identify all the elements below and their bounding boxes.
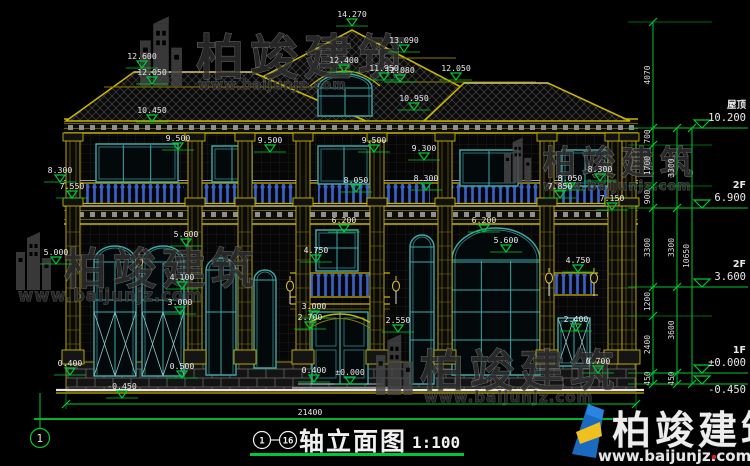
elevation-marker-value: -0.450 xyxy=(107,381,137,391)
elevation-marker-value: 4.750 xyxy=(304,245,329,255)
lantern-body xyxy=(546,273,553,283)
dentil xyxy=(277,212,282,217)
dentil xyxy=(90,125,95,130)
title-underline xyxy=(250,453,464,456)
pilaster-band xyxy=(63,198,83,206)
elevation-marker-value: 2.400 xyxy=(564,314,589,324)
dentil xyxy=(310,212,315,217)
pilaster-capital xyxy=(537,133,557,141)
dentil xyxy=(244,125,249,130)
dentil xyxy=(453,212,458,217)
dentil xyxy=(321,125,326,130)
pilaster-capital xyxy=(235,133,255,141)
elevation-marker-value: 3.000 xyxy=(168,297,193,307)
dentil xyxy=(343,125,348,130)
dentil xyxy=(497,125,502,130)
elevation-marker-value: 0.700 xyxy=(586,356,611,366)
chain-dim-value: 900 xyxy=(643,190,652,205)
pilaster-base xyxy=(292,350,314,364)
balustrade xyxy=(204,184,308,203)
dentil xyxy=(156,125,161,130)
chain-dim-value: 1700 xyxy=(643,156,652,175)
pilaster-capital xyxy=(293,133,313,141)
url-red-dot xyxy=(712,455,717,460)
elevation-marker-value: 10.450 xyxy=(137,105,167,115)
dentil xyxy=(585,212,590,217)
dentil xyxy=(211,212,216,217)
dentil xyxy=(123,212,128,217)
dentil xyxy=(563,212,568,217)
dentil xyxy=(409,125,414,130)
dentil xyxy=(519,212,524,217)
dentil xyxy=(508,212,513,217)
level-value: 6.900 xyxy=(714,192,746,204)
dentil xyxy=(519,125,524,130)
elevation-marker-value: 9.500 xyxy=(166,133,191,143)
dentil xyxy=(101,212,106,217)
dentil xyxy=(222,212,227,217)
watermark-logo-bottom-right: 柏竣建筑 www.baijunjz.com xyxy=(572,404,750,465)
elevation-marker-value: 9.500 xyxy=(258,135,283,145)
elevation-marker-value: 8.050 xyxy=(344,175,369,185)
dentil xyxy=(112,125,117,130)
dentil xyxy=(365,125,370,130)
pilaster-band xyxy=(537,198,557,206)
dentil xyxy=(420,125,425,130)
chain-dim-value: 3300 xyxy=(643,238,652,257)
elevation-marker-value: ±0.000 xyxy=(335,367,365,377)
dentil xyxy=(508,125,513,130)
level-value: ±0.000 xyxy=(708,357,746,369)
dentil xyxy=(321,212,326,217)
chain-dim-value: 3300 xyxy=(667,158,676,177)
dentil xyxy=(255,125,260,130)
elevation-marker-value: 9.500 xyxy=(362,135,387,145)
drawing-title: 轴立面图 xyxy=(299,427,407,456)
dentil xyxy=(431,125,436,130)
dentil xyxy=(552,125,557,130)
dentil xyxy=(618,125,623,130)
chain-dim-value: 4070 xyxy=(643,65,652,84)
dentil xyxy=(563,125,568,130)
dentil xyxy=(167,125,172,130)
elevation-marker-value: 5.000 xyxy=(44,247,69,257)
dentil xyxy=(464,125,469,130)
dentil xyxy=(409,212,414,217)
dentil xyxy=(354,125,359,130)
watermark-url: www.baijunjz.com xyxy=(424,388,593,406)
level-label: 2F xyxy=(733,180,746,191)
dentil xyxy=(530,125,535,130)
dentil xyxy=(365,212,370,217)
elevation-marker-value: 7.150 xyxy=(600,193,625,203)
dentil xyxy=(178,125,183,130)
rect xyxy=(370,133,384,362)
elevation-marker-value: 7.550 xyxy=(60,181,85,191)
elevation-marker-value: 9.300 xyxy=(412,143,437,153)
elevation-marker-value: 11.950 xyxy=(369,63,399,73)
chain-dim-value: 3300 xyxy=(667,238,676,257)
pilaster-band xyxy=(185,198,205,206)
lantern-body xyxy=(287,281,294,291)
pilaster-base xyxy=(618,350,640,364)
dentil xyxy=(178,212,183,217)
elevation-marker-value: 2.550 xyxy=(386,315,411,325)
dentil xyxy=(442,125,447,130)
dentil xyxy=(497,212,502,217)
dentil xyxy=(541,125,546,130)
lantern-body xyxy=(591,273,598,283)
dentil xyxy=(596,212,601,217)
elevation-marker-value: 8.300 xyxy=(588,164,613,174)
dentil xyxy=(464,212,469,217)
level-label: 2F xyxy=(733,259,746,270)
elevation-marker-value: 12.400 xyxy=(329,55,359,65)
rect xyxy=(438,133,452,362)
balustrade xyxy=(440,184,552,203)
porch-balustrade xyxy=(552,274,592,294)
dentil xyxy=(398,212,403,217)
dentil xyxy=(222,125,227,130)
chain-dim-value: 3600 xyxy=(667,320,676,339)
dentil xyxy=(90,212,95,217)
pilaster-capital xyxy=(63,133,83,141)
dentil xyxy=(431,212,436,217)
pilaster-capital xyxy=(435,133,455,141)
dentil xyxy=(266,212,271,217)
dentil xyxy=(79,125,84,130)
watermark-url: www.baijunjz.com xyxy=(598,447,750,465)
elevation-drawing: 柏竣建筑 www.baijunjz.com 柏竣建筑 www.baijunjz.… xyxy=(0,0,750,466)
dentil xyxy=(332,125,337,130)
dentil xyxy=(123,125,128,130)
dentil xyxy=(486,125,491,130)
dentil xyxy=(134,212,139,217)
dentil xyxy=(376,125,381,130)
drawing-scale: 1:100 xyxy=(412,433,460,452)
dentil xyxy=(266,125,271,130)
level-label: 屋顶 xyxy=(727,100,747,111)
dentil xyxy=(112,212,117,217)
dentil xyxy=(387,212,392,217)
level-label: 1F xyxy=(733,345,746,356)
balustrade xyxy=(86,184,184,203)
pilaster-capital xyxy=(619,133,639,141)
dentil xyxy=(189,125,194,130)
dentil xyxy=(167,212,172,217)
dentil xyxy=(574,125,579,130)
watermark-url: www.baijunjz.com xyxy=(198,78,347,93)
chain-dim-value: 2400 xyxy=(643,335,652,354)
axis-start-number: 1 xyxy=(259,437,264,447)
elevation-marker-value: 10.950 xyxy=(399,93,429,103)
dentil xyxy=(596,125,601,130)
elevation-marker-value: 4.100 xyxy=(170,272,195,282)
elevation-marker-value: 2.700 xyxy=(298,312,323,322)
chain-dim-value: 1200 xyxy=(643,292,652,311)
dentil xyxy=(156,212,161,217)
elevation-marker-value: 6.200 xyxy=(332,215,357,225)
axis-end-number: 16 xyxy=(283,437,294,447)
pilaster-band xyxy=(435,198,455,206)
dentil xyxy=(387,125,392,130)
elevation-marker-value: 3.000 xyxy=(302,301,327,311)
dentil xyxy=(145,125,150,130)
elevation-marker-value: 0.500 xyxy=(170,361,195,371)
dentil xyxy=(233,125,238,130)
elevation-marker-value: 12.600 xyxy=(127,51,157,61)
dentil xyxy=(233,212,238,217)
elevation-marker-value: 7.850 xyxy=(548,181,573,191)
elevation-marker-value: 8.300 xyxy=(48,165,73,175)
dentil xyxy=(530,212,535,217)
pilaster-band xyxy=(235,198,255,206)
elevation-marker-value: 12.050 xyxy=(137,67,167,77)
elevation-marker-value: 0.400 xyxy=(302,365,327,375)
lantern-body xyxy=(393,281,400,291)
dentil xyxy=(607,125,612,130)
dentil xyxy=(255,212,260,217)
elevation-marker-value: 12.050 xyxy=(441,63,471,73)
dentil xyxy=(288,212,293,217)
dentil xyxy=(68,125,73,130)
pilaster-band xyxy=(293,198,313,206)
elevation-marker-value: 4.750 xyxy=(566,255,591,265)
dentil xyxy=(585,125,590,130)
overall-width-value: 21400 xyxy=(298,407,323,417)
dentil xyxy=(398,125,403,130)
dentil xyxy=(629,125,634,130)
axis-bubble-number: 1 xyxy=(37,433,44,445)
level-value: 3.600 xyxy=(714,271,746,283)
dentil xyxy=(420,212,425,217)
level-value: -0.450 xyxy=(708,384,746,396)
dentil xyxy=(145,212,150,217)
dentil xyxy=(453,125,458,130)
dentil xyxy=(101,125,106,130)
chain-dim-value: 700 xyxy=(643,129,652,144)
dentil xyxy=(277,125,282,130)
dentil xyxy=(299,125,304,130)
dentil xyxy=(288,125,293,130)
cad-elevation-sheet: 柏竣建筑 www.baijunjz.com 柏竣建筑 www.baijunjz.… xyxy=(0,0,750,466)
elevation-marker-value: 0.400 xyxy=(58,358,83,368)
elevation-marker-value: 14.270 xyxy=(337,9,367,19)
elevation-marker-value: 5.600 xyxy=(174,229,199,239)
dentil xyxy=(134,125,139,130)
dentil xyxy=(574,212,579,217)
dentil xyxy=(475,125,480,130)
total-dim-value: 10650 xyxy=(682,244,691,268)
elevation-marker-value: 13.090 xyxy=(389,35,419,45)
pilaster-band xyxy=(367,198,387,206)
pilaster-base xyxy=(234,350,256,364)
elevation-marker-value: 8.300 xyxy=(414,173,439,183)
level-value: 10.200 xyxy=(708,112,746,124)
dentil xyxy=(200,125,205,130)
elevation-marker-value: 6.200 xyxy=(472,215,497,225)
dentil xyxy=(310,125,315,130)
dentil xyxy=(211,125,216,130)
elevation-marker-value: 5.600 xyxy=(494,235,519,245)
